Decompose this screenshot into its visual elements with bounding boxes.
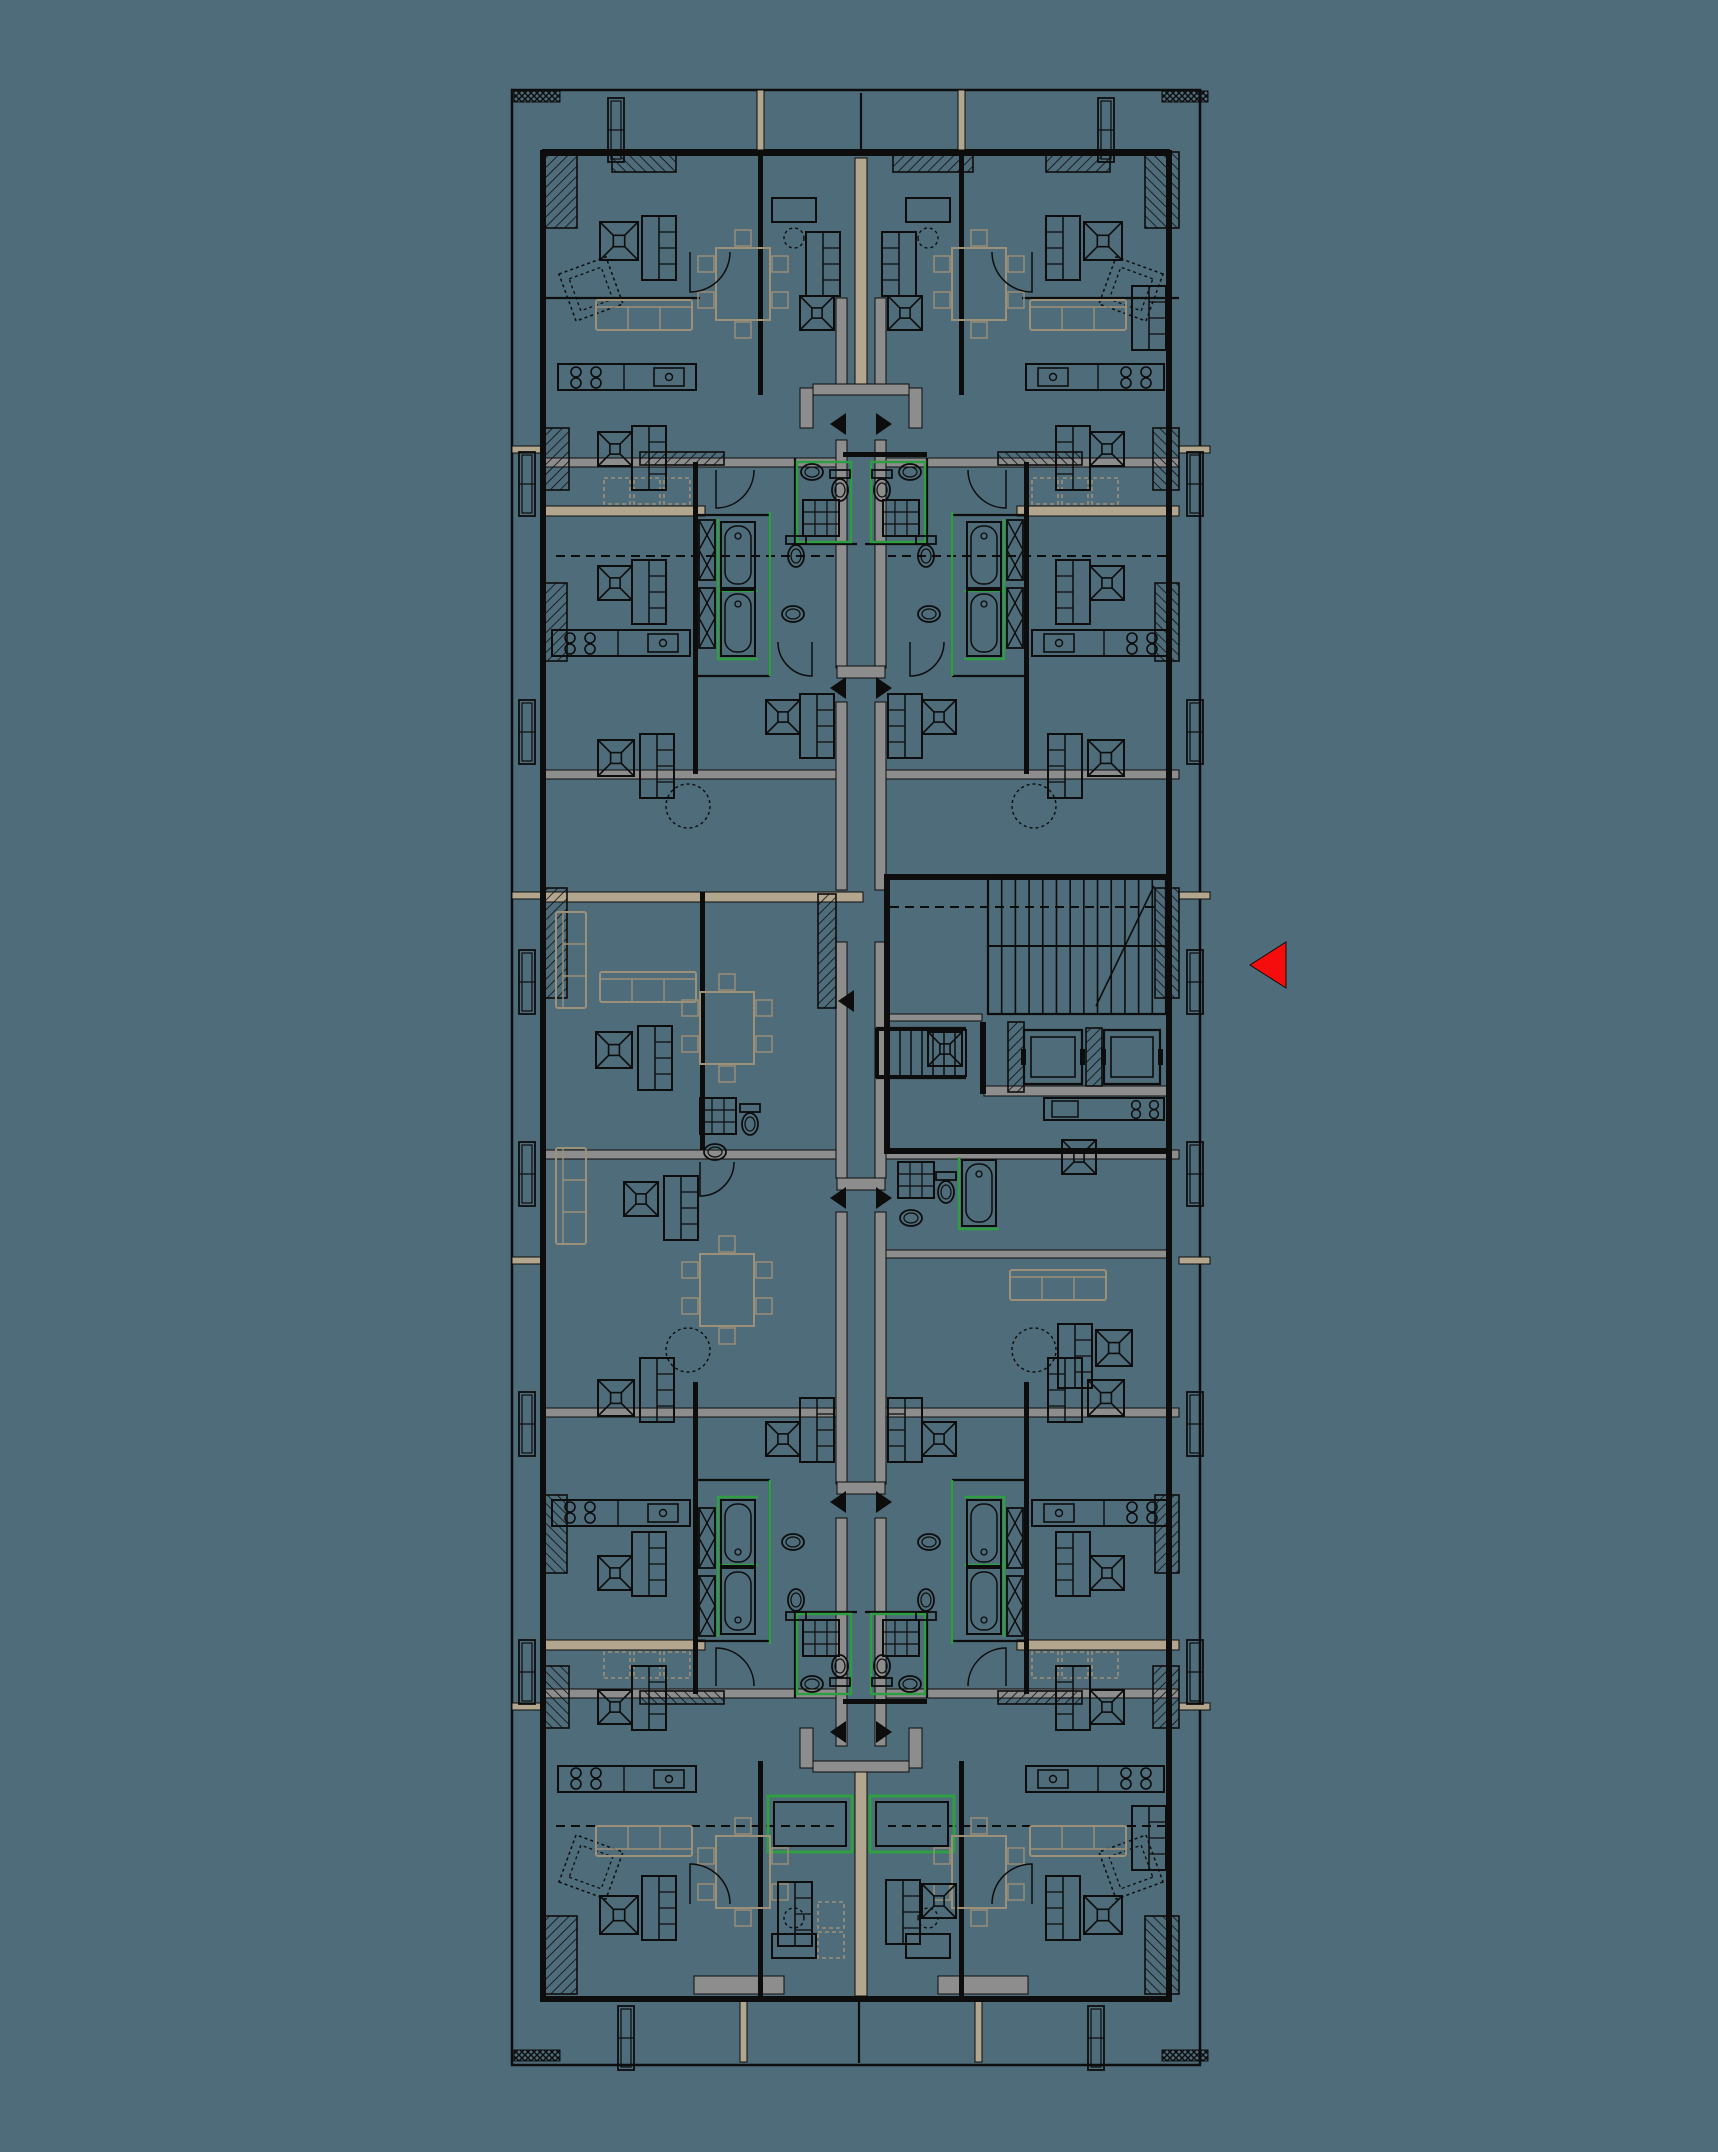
- floor-plan-drawing: [0, 0, 1718, 2152]
- floor-plan-stage: [0, 0, 1718, 2152]
